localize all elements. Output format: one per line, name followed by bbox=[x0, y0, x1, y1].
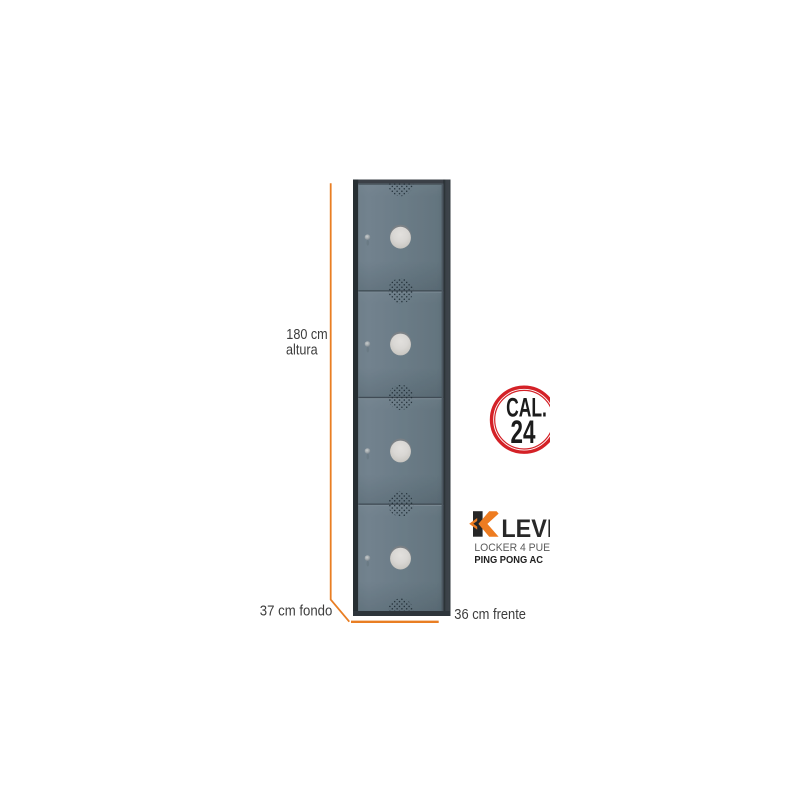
svg-text:PING PONG AC: PING PONG AC bbox=[474, 555, 543, 566]
svg-text:37 cm fondo: 37 cm fondo bbox=[260, 604, 333, 620]
svg-text:180 cm: 180 cm bbox=[286, 327, 327, 343]
svg-text:36 cm frente: 36 cm frente bbox=[454, 607, 526, 623]
svg-text:altura: altura bbox=[286, 343, 318, 359]
svg-text:24: 24 bbox=[511, 414, 536, 450]
